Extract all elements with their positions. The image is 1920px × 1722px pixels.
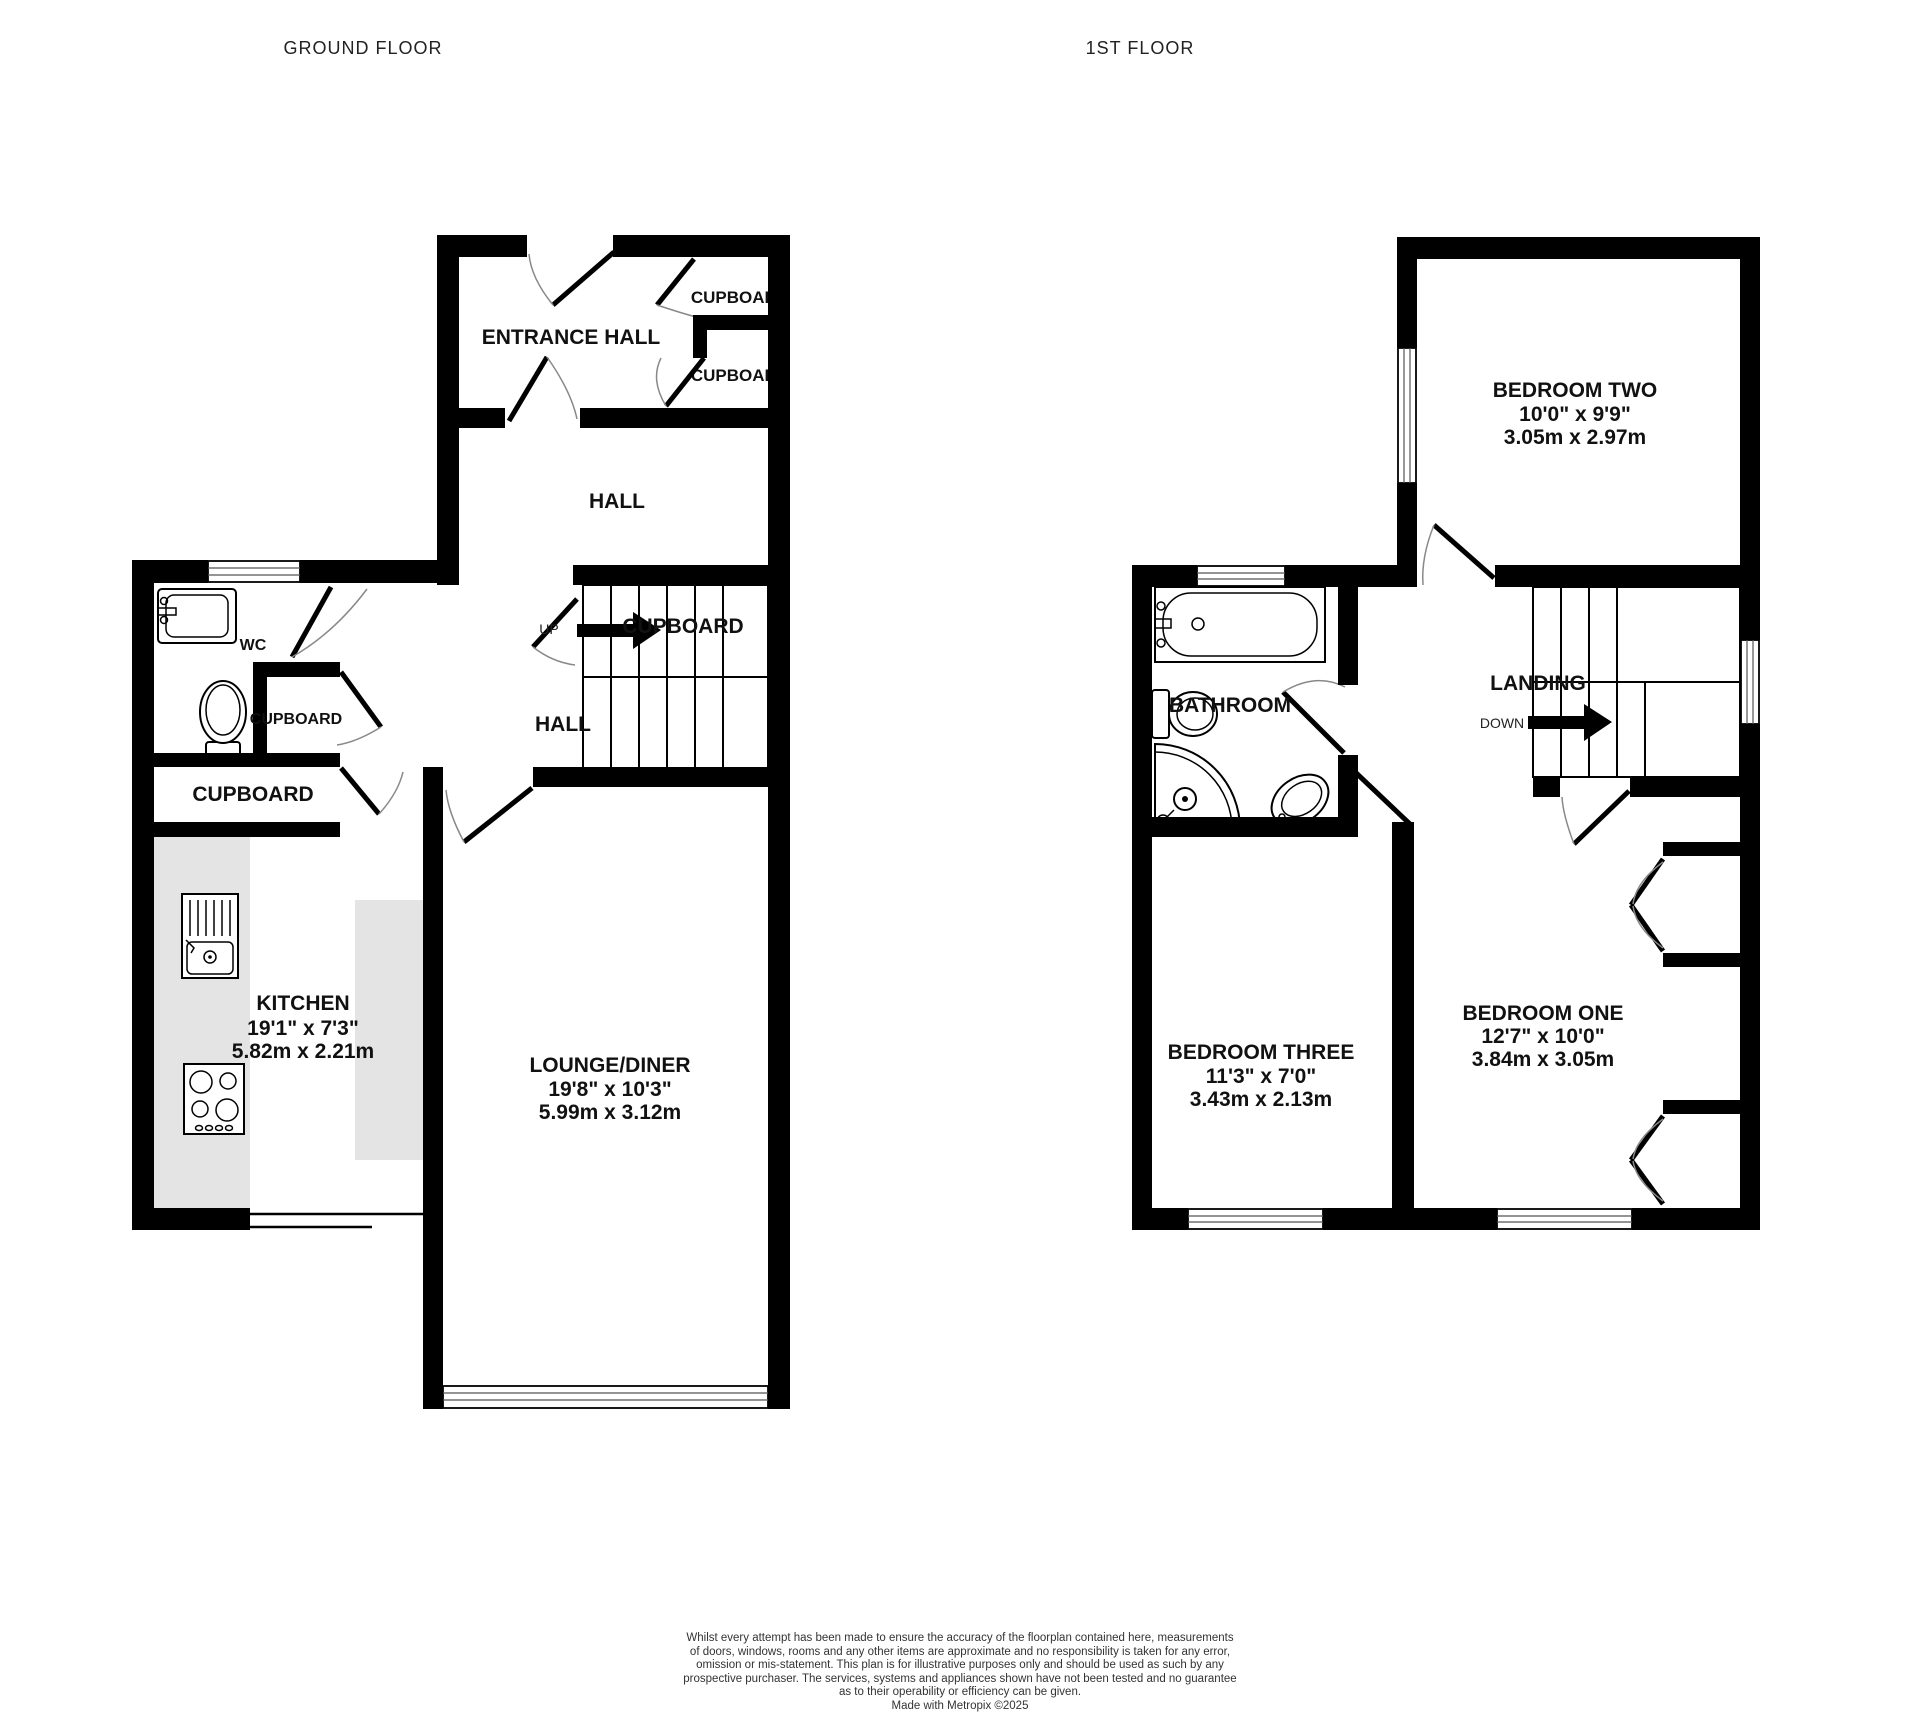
wc-toilet (200, 681, 246, 757)
room-dim-bedroom-one-imperial: 12'7" x 10'0" (1481, 1025, 1604, 1048)
floorplan-page: CUPBOARD CUPBOARD (0, 0, 1920, 1722)
kitchen-lounge-boundary (250, 1214, 423, 1227)
kitchen-hob (184, 1064, 244, 1134)
room-dim-bedroom-two-imperial: 10'0" x 9'9" (1519, 403, 1631, 426)
corner-shower (1155, 744, 1240, 829)
ground-floor-plan: CUPBOARD CUPBOARD (132, 235, 790, 1409)
room-label-landing: LANDING (1490, 672, 1586, 695)
first-floor-plan: BEDROOM TWO 10'0" x 9'9" 3.05m x 2.97m B… (1132, 237, 1760, 1230)
room-dim-lounge-metric: 5.99m x 3.12m (539, 1101, 681, 1124)
room-label-entrance-hall: ENTRANCE HALL (482, 326, 661, 349)
room-label-bedroom-two: BEDROOM TWO (1493, 379, 1657, 402)
disclaimer-line: of doors, windows, rooms and any other i… (0, 1646, 1920, 1660)
room-label-bedroom-three: BEDROOM THREE (1168, 1041, 1355, 1064)
disclaimer-line: prospective purchaser. The services, sys… (0, 1673, 1920, 1687)
bath (1155, 587, 1325, 662)
disclaimer-line: as to their operability or efficiency ca… (0, 1686, 1920, 1700)
room-label-cupboard-room: CUPBOARD (192, 783, 313, 806)
stairs-down-label: DOWN (1480, 715, 1524, 731)
kitchen-sink (182, 894, 238, 978)
disclaimer-credit: Made with Metropix ©2025 (0, 1700, 1920, 1714)
ground-floor-title: GROUND FLOOR (283, 38, 442, 58)
windows-ground (208, 561, 768, 1408)
first-floor-title: 1ST FLOOR (1086, 38, 1195, 58)
room-label-bathroom: BATHROOM (1169, 694, 1291, 717)
room-label-lounge-diner: LOUNGE/DINER (529, 1054, 690, 1077)
walls-ground (132, 235, 790, 1409)
room-label-bedroom-one: BEDROOM ONE (1462, 1002, 1623, 1025)
room-dim-bedroom-three-imperial: 11'3" x 7'0" (1206, 1065, 1317, 1088)
room-label-stairs-cupboard: CUPBOARD (622, 615, 743, 638)
wc-sink (158, 589, 236, 643)
stairs-down-arrow (1528, 704, 1612, 741)
room-dim-lounge-imperial: 19'8" x 10'3" (548, 1078, 671, 1101)
floorplan-drawing: CUPBOARD CUPBOARD (0, 0, 1920, 1722)
disclaimer: Whilst every attempt has been made to en… (0, 1632, 1920, 1713)
stairs-up-label: UP (539, 621, 558, 637)
disclaimer-line: omission or mis-statement. This plan is … (0, 1659, 1920, 1673)
room-dim-bedroom-two-metric: 3.05m x 2.97m (1504, 426, 1646, 449)
room-label-kitchen: KITCHEN (256, 992, 349, 1015)
room-label-hall-lower: HALL (535, 713, 591, 736)
room-label-hall: HALL (589, 490, 645, 513)
room-dim-bedroom-three-metric: 3.43m x 2.13m (1190, 1088, 1332, 1111)
room-dim-kitchen-metric: 5.82m x 2.21m (232, 1040, 374, 1063)
room-label-wc: WC (240, 637, 267, 654)
room-label-wc-cupboard: CUPBOARD (250, 711, 342, 728)
disclaimer-line: Whilst every attempt has been made to en… (0, 1632, 1920, 1646)
room-dim-bedroom-one-metric: 3.84m x 3.05m (1472, 1048, 1614, 1071)
room-dim-kitchen-imperial: 19'1" x 7'3" (247, 1017, 359, 1040)
staircase-ground (577, 585, 768, 775)
